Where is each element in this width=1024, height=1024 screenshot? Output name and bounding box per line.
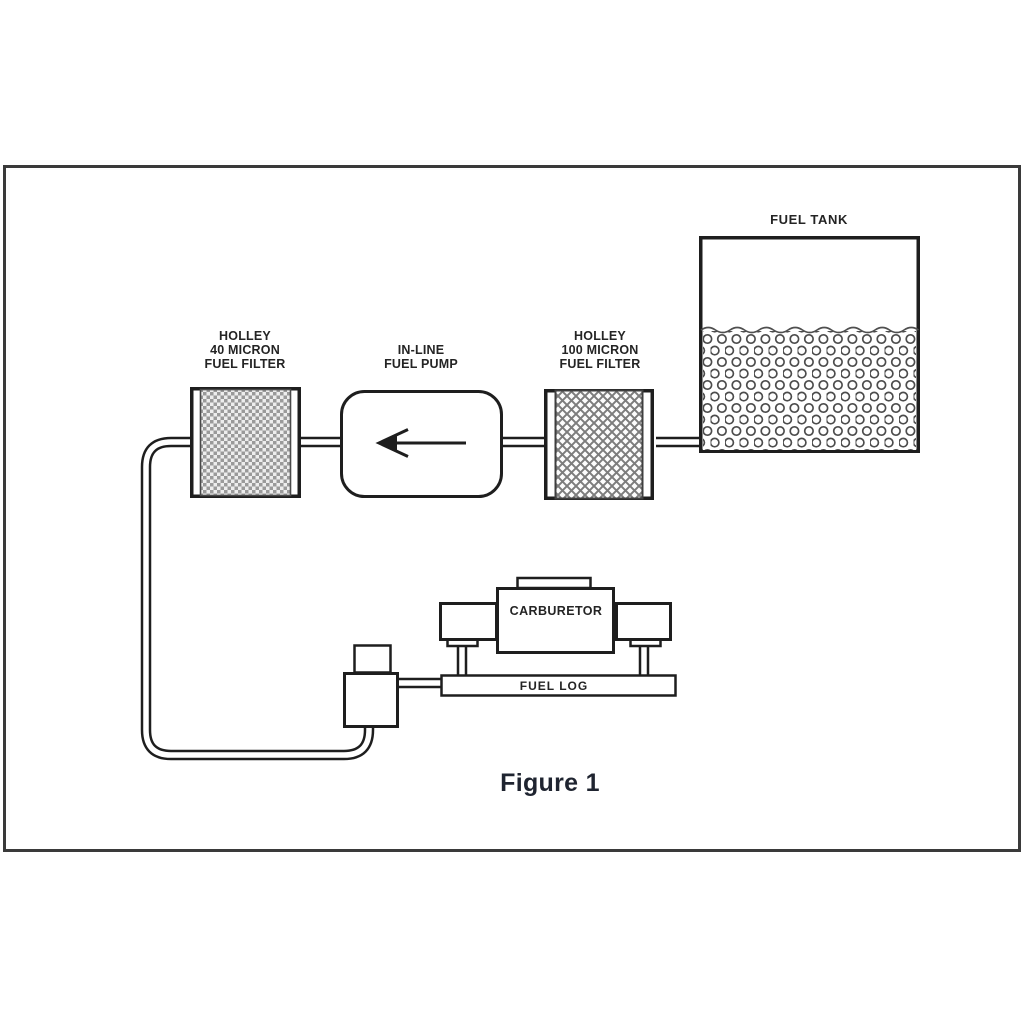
fuel-tank-liquid (703, 331, 916, 450)
fuel-tank-label: FUEL TANK (770, 212, 848, 227)
filter-40-micron-shape (192, 389, 300, 497)
filter-40-micron-label: HOLLEY 40 MICRON FUEL FILTER (205, 329, 286, 371)
filter-40-mesh (201, 390, 291, 496)
carburetor-body (498, 589, 614, 653)
fuel-log-fitting-shape (345, 646, 398, 727)
inline-fuel-pump-label: IN-LINE FUEL PUMP (384, 343, 458, 371)
carburetor-label: CARBURETOR (510, 604, 603, 618)
carburetor-top-handle (518, 578, 591, 588)
carburetor-left-wing (441, 604, 497, 640)
fuel-system-diagram (0, 0, 1024, 1024)
fuel-pump-shape (342, 392, 502, 497)
filter-100-micron-shape (546, 391, 653, 499)
filter-100-micron-label: HOLLEY 100 MICRON FUEL FILTER (560, 329, 641, 371)
fitting-main-box (345, 674, 398, 727)
document-page: FUEL TANK HOLLEY 40 MICRON FUEL FILTER I… (0, 0, 1024, 1024)
carburetor-right-wing (617, 604, 671, 640)
filter-100-mesh (556, 391, 643, 499)
fuel-log-label: FUEL LOG (520, 679, 588, 693)
fitting-top-box (355, 646, 391, 673)
fuel-tank-shape (701, 238, 919, 452)
figure-caption: Figure 1 (500, 769, 600, 798)
